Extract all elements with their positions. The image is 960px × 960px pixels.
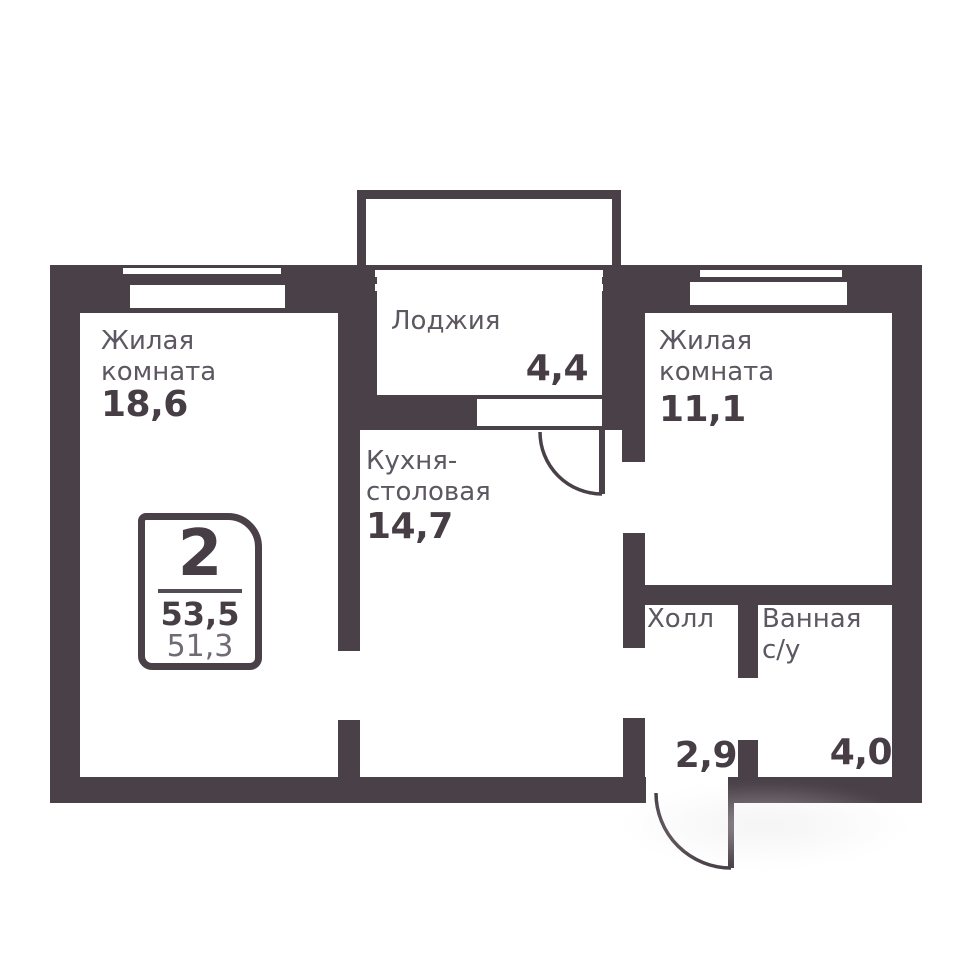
kitchen-label-line2: столовая bbox=[366, 477, 491, 508]
wall-living1-kitchen-lower bbox=[338, 720, 360, 777]
living1-label: Жилая комната bbox=[101, 326, 216, 388]
wall-outer-left bbox=[50, 265, 80, 803]
living2-label-line2: комната bbox=[659, 357, 774, 388]
hall-area: 2,9 bbox=[655, 735, 737, 776]
bathroom-label-line1: Ванная bbox=[762, 604, 861, 635]
opening-balcony-door bbox=[477, 399, 602, 426]
window-living1 bbox=[130, 285, 285, 308]
kitchen-label: Кухня- столовая bbox=[366, 446, 491, 508]
window-living2-outer-line bbox=[700, 270, 842, 277]
living1-label-line1: Жилая bbox=[101, 326, 216, 357]
badge-living-area: 51,3 bbox=[167, 631, 234, 663]
floor-plan: Жилая комната 18,6 Лоджия 4,4 Жилая комн… bbox=[0, 0, 960, 960]
bathroom-label-line2: с/у bbox=[762, 635, 861, 666]
bathroom-label: Ванная с/у bbox=[762, 604, 861, 666]
apartment-badge: 2 53,5 51,3 bbox=[138, 513, 262, 670]
living2-area: 11,1 bbox=[659, 389, 746, 430]
wall-outer-bottom bbox=[50, 777, 922, 803]
badge-total-area: 53,5 bbox=[161, 597, 240, 631]
wall-kitchen-hall-lower bbox=[623, 718, 645, 777]
loggia-label: Лоджия bbox=[391, 306, 500, 337]
wall-kitchen-living2-upper bbox=[622, 265, 645, 462]
bathroom-area: 4,0 bbox=[806, 732, 892, 773]
window-living2 bbox=[690, 282, 847, 305]
wall-living1-kitchen-upper bbox=[338, 430, 360, 651]
kitchen-area: 14,7 bbox=[366, 506, 453, 547]
wall-outer-right bbox=[892, 265, 922, 803]
wall-living2-bottom bbox=[623, 585, 893, 605]
living1-area: 18,6 bbox=[101, 384, 188, 425]
badge-room-count: 2 bbox=[178, 525, 223, 583]
balcony-outline bbox=[357, 190, 621, 274]
badge-divider bbox=[158, 589, 242, 593]
wall-hall-bathroom-upper bbox=[738, 585, 758, 678]
hall-label: Холл bbox=[647, 604, 714, 635]
window-living1-outer-line bbox=[123, 268, 281, 274]
living2-label-line1: Жилая bbox=[659, 326, 774, 357]
wall-hall-bathroom-lower bbox=[738, 740, 758, 777]
window-loggia-line1 bbox=[375, 270, 603, 277]
loggia-area: 4,4 bbox=[488, 348, 588, 389]
window-loggia-line2 bbox=[375, 284, 603, 291]
kitchen-label-line1: Кухня- bbox=[366, 446, 491, 477]
entrance-door-arc bbox=[650, 788, 736, 874]
living2-label: Жилая комната bbox=[659, 326, 774, 388]
